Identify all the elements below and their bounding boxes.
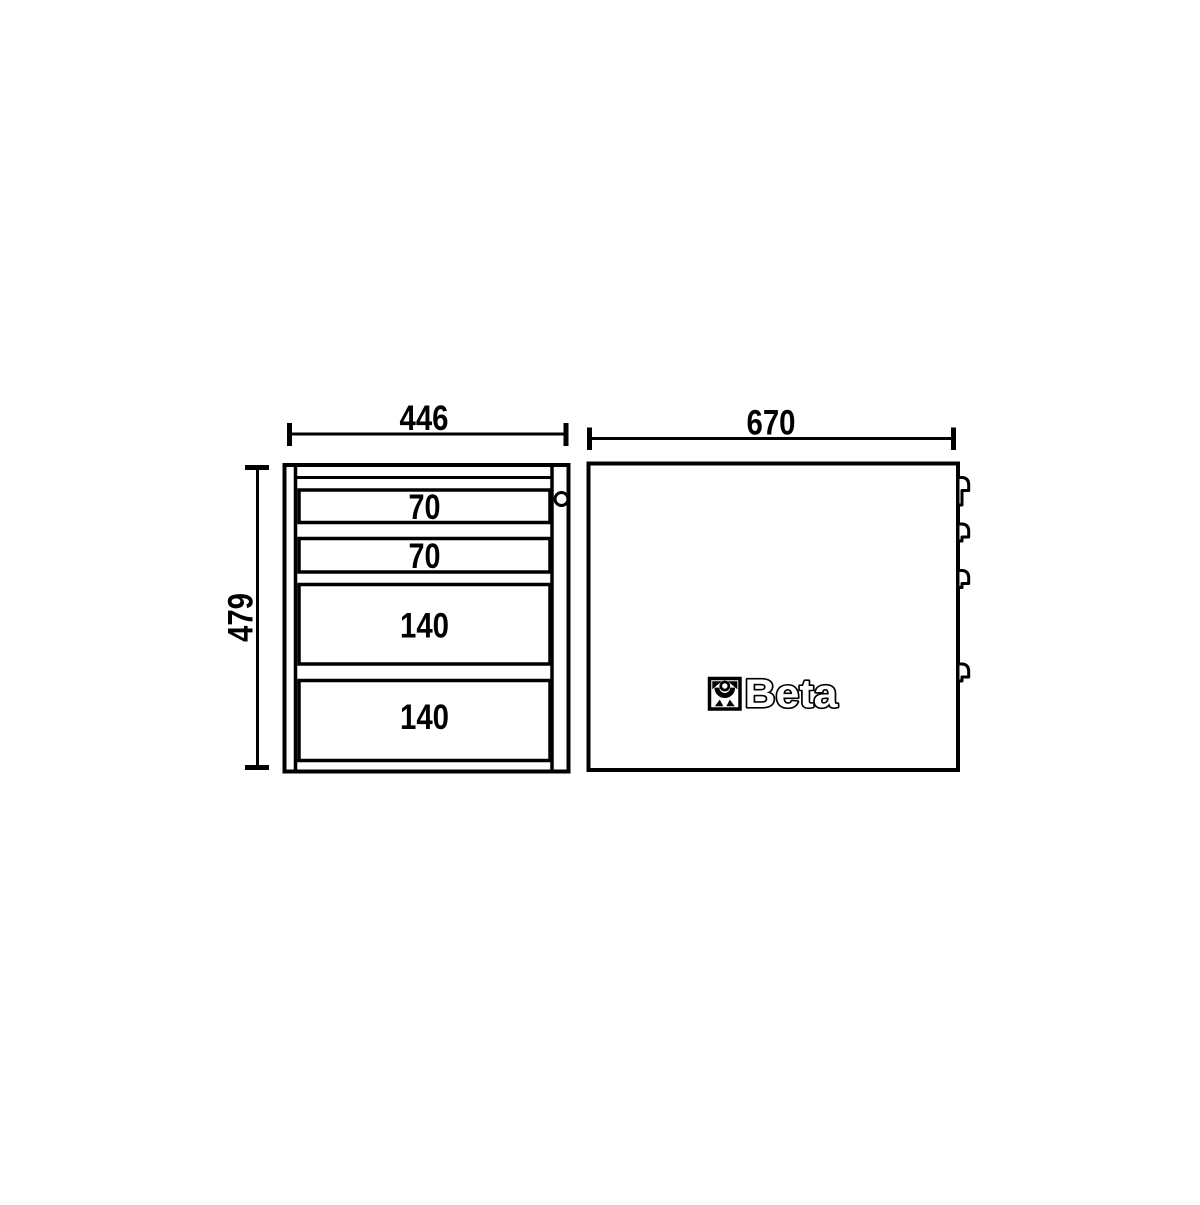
technical-drawing: 446 670 479 70 70 140 140 <box>0 0 1200 1200</box>
front-height-label: 479 <box>222 593 261 642</box>
front-height-dimension: 479 <box>222 468 270 768</box>
front-view: 70 70 140 140 <box>285 465 569 772</box>
drawer-3-height-label: 140 <box>400 607 449 646</box>
cabinet-body-side <box>589 464 959 771</box>
emblem-ring-hole <box>722 683 727 688</box>
drawer-handle-profile-1 <box>958 478 969 506</box>
drawer-handle-profile-2 <box>958 524 969 541</box>
drawer-4-height-label: 140 <box>400 698 449 737</box>
brand-wordmark: Beta <box>745 672 839 716</box>
drawer-1-height-label: 70 <box>409 488 441 527</box>
front-width-label: 446 <box>400 399 449 438</box>
drawer-handle-profile-4 <box>958 664 969 681</box>
side-depth-dimension: 670 <box>590 404 954 451</box>
beta-logo: Beta <box>710 672 839 716</box>
side-depth-label: 670 <box>747 404 796 443</box>
cabinet-dimension-diagram: 446 670 479 70 70 140 140 <box>0 0 1200 1200</box>
drawer-handle-profile-3 <box>958 571 969 588</box>
side-view: Beta <box>589 464 969 771</box>
drawer-2-height-label: 70 <box>409 537 441 576</box>
lock-icon <box>555 493 568 506</box>
front-width-dimension: 446 <box>290 399 567 446</box>
